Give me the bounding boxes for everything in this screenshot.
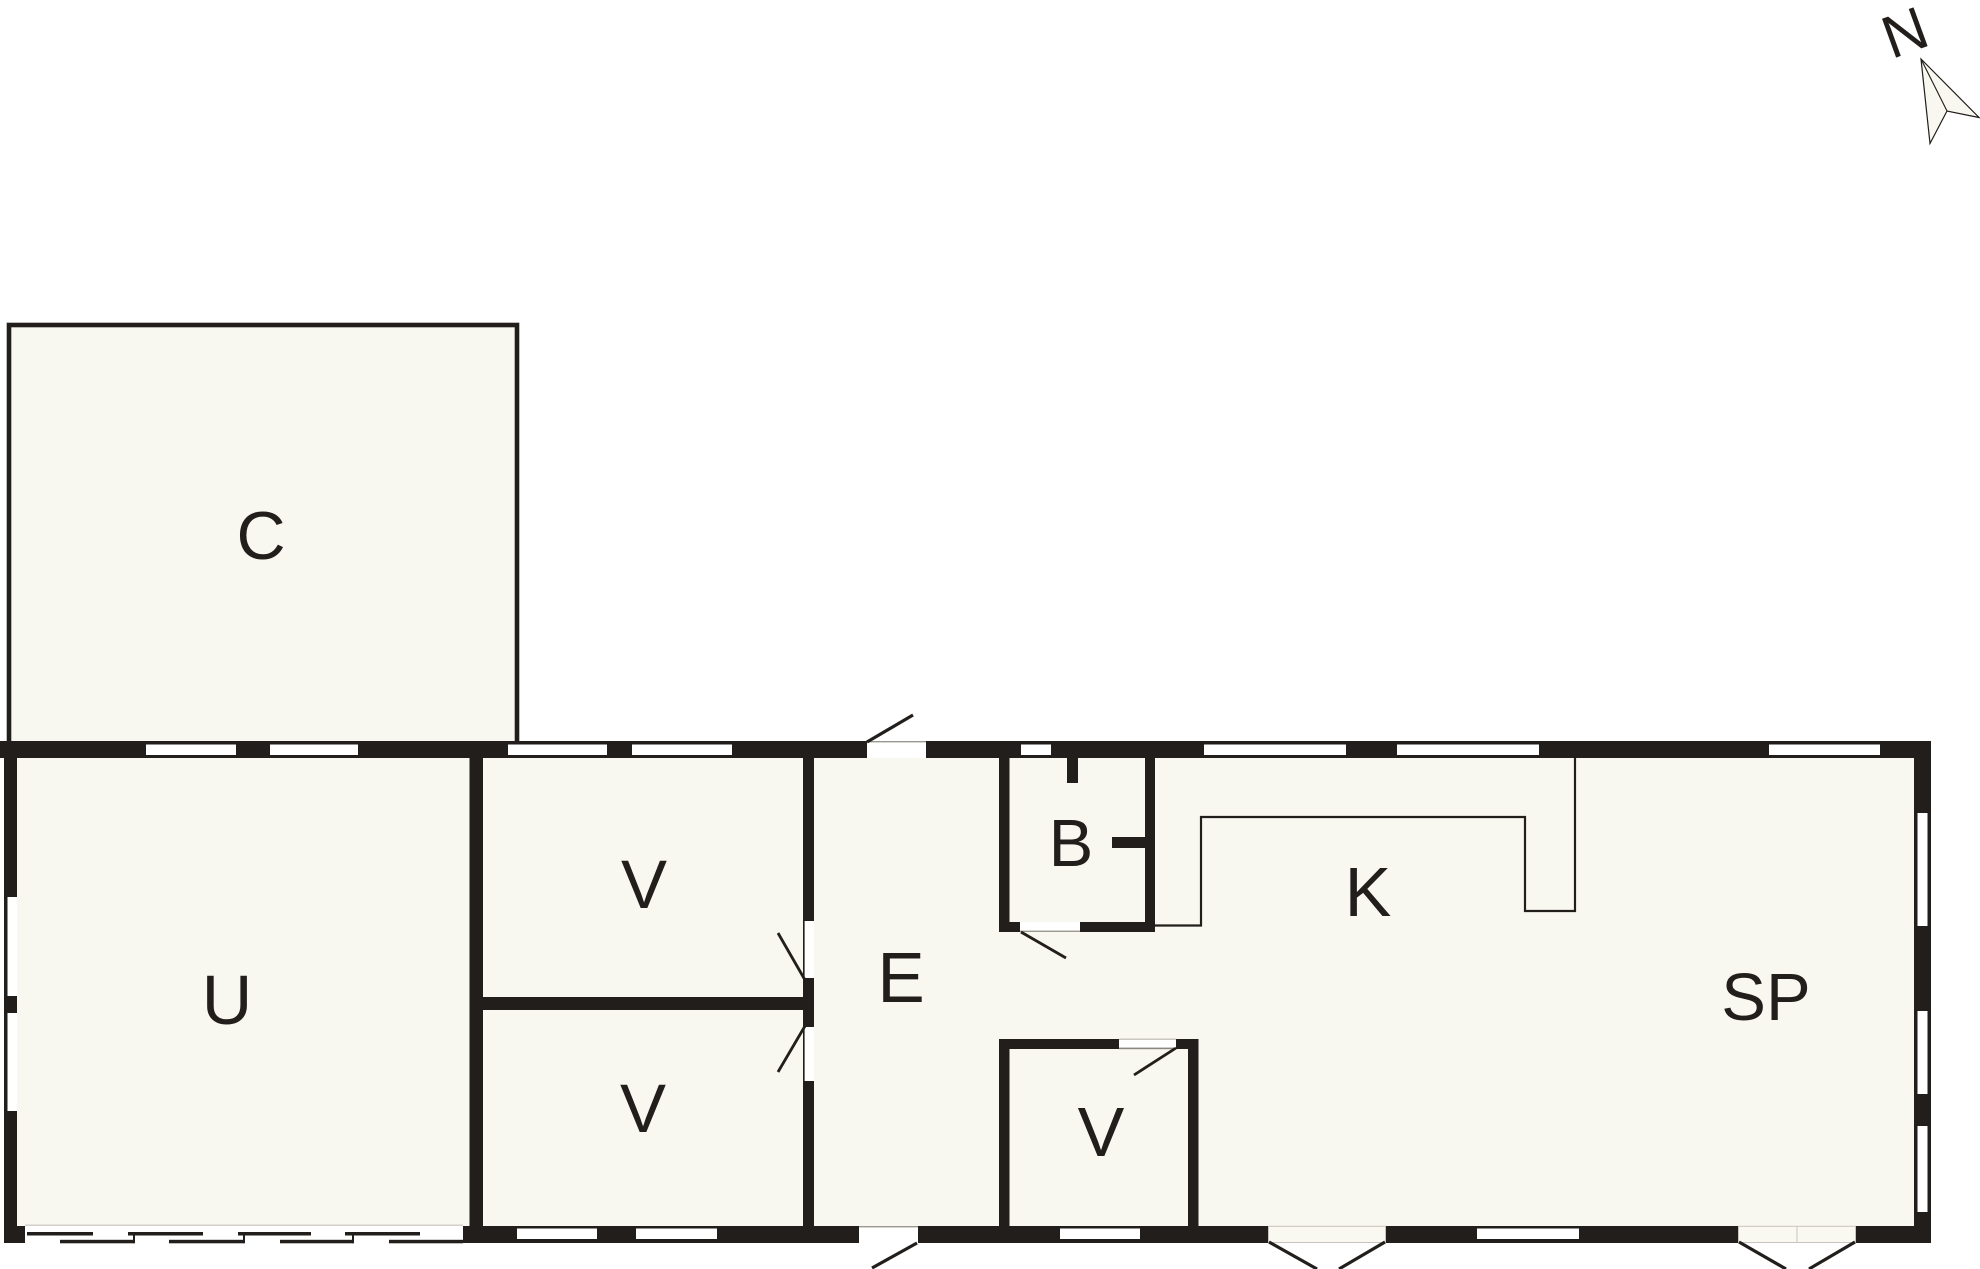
- svg-text:V: V: [621, 846, 667, 923]
- svg-text:B: B: [1049, 806, 1094, 881]
- svg-text:SP: SP: [1721, 960, 1810, 1035]
- svg-text:V: V: [620, 1070, 666, 1147]
- svg-text:C: C: [236, 498, 285, 574]
- svg-text:E: E: [877, 939, 924, 1018]
- svg-text:U: U: [202, 961, 253, 1039]
- svg-text:K: K: [1345, 853, 1392, 931]
- svg-text:V: V: [1078, 1093, 1125, 1171]
